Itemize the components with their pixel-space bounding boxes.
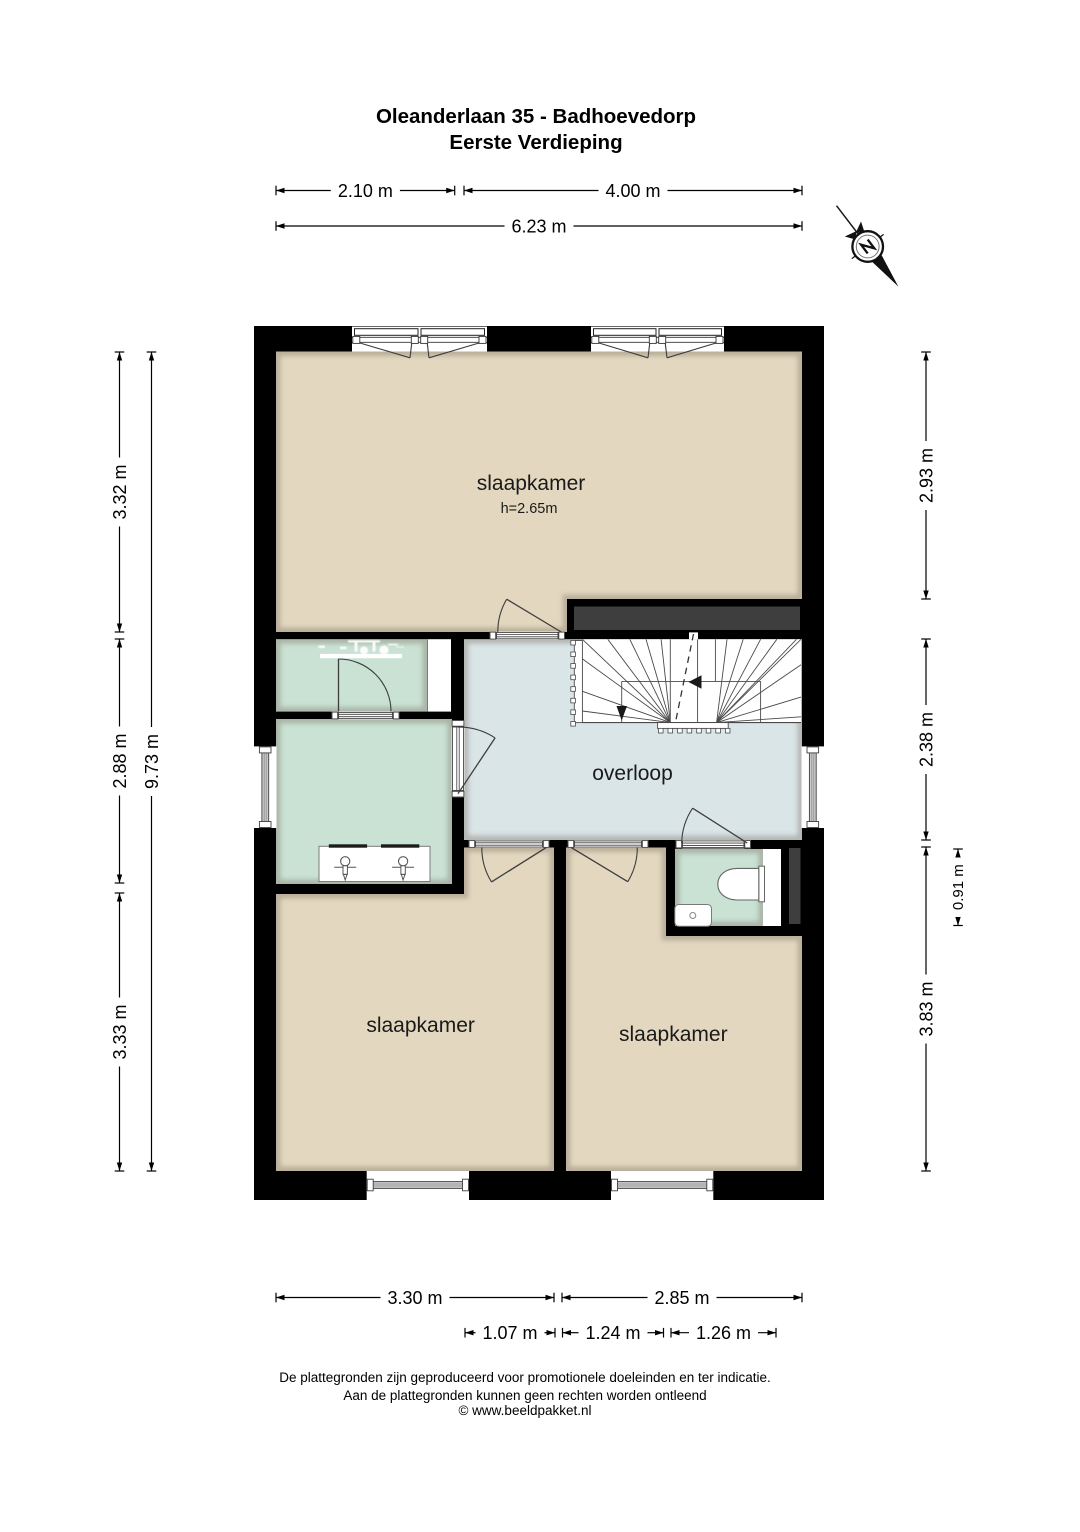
svg-text:© www.beeldpakket.nl: © www.beeldpakket.nl [458, 1403, 591, 1418]
svg-text:1.07 m: 1.07 m [482, 1323, 537, 1343]
svg-text:4.00 m: 4.00 m [605, 181, 660, 201]
svg-text:slaapkamer: slaapkamer [619, 1023, 728, 1046]
svg-text:Aan de plattegronden kunnen ge: Aan de plattegronden kunnen geen rechten… [343, 1388, 706, 1403]
svg-text:9.73 m: 9.73 m [142, 734, 162, 789]
svg-text:3.32 m: 3.32 m [110, 464, 130, 519]
svg-text:De plattegronden zijn geproduc: De plattegronden zijn geproduceerd voor … [279, 1370, 771, 1385]
svg-text:0.91 m: 0.91 m [950, 864, 967, 910]
svg-text:slaapkamer: slaapkamer [366, 1014, 475, 1037]
svg-text:2.10 m: 2.10 m [338, 181, 393, 201]
svg-text:Oleanderlaan 35 - Badhoevedorp: Oleanderlaan 35 - Badhoevedorp [376, 105, 696, 128]
svg-text:3.33 m: 3.33 m [110, 1004, 130, 1059]
svg-text:slaapkamer: slaapkamer [477, 472, 586, 495]
svg-text:2.93 m: 2.93 m [916, 448, 936, 503]
svg-text:1.26 m: 1.26 m [696, 1323, 751, 1343]
svg-text:6.23 m: 6.23 m [511, 216, 566, 236]
svg-text:2.38 m: 2.38 m [916, 712, 936, 767]
svg-text:3.83 m: 3.83 m [916, 981, 936, 1036]
svg-text:2.85 m: 2.85 m [654, 1288, 709, 1308]
svg-text:h=2.65m: h=2.65m [501, 501, 558, 517]
svg-text:2.88 m: 2.88 m [110, 733, 130, 788]
svg-text:3.30 m: 3.30 m [387, 1288, 442, 1308]
svg-text:1.24 m: 1.24 m [585, 1323, 640, 1343]
svg-text:Eerste Verdieping: Eerste Verdieping [449, 131, 622, 154]
svg-text:overloop: overloop [592, 762, 673, 785]
